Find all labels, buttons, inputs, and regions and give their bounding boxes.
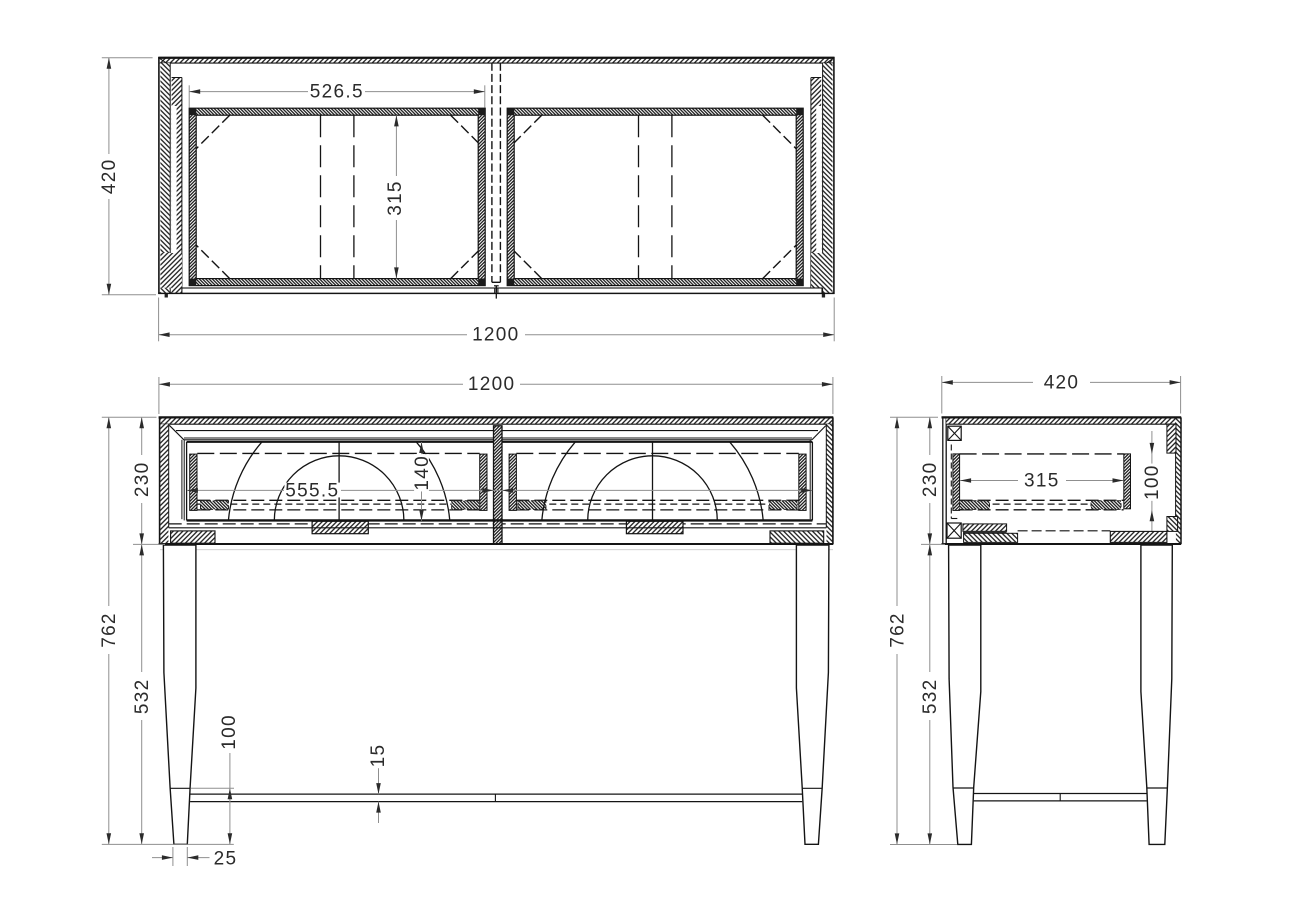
- svg-text:230: 230: [132, 461, 153, 497]
- svg-text:25: 25: [214, 848, 238, 869]
- svg-text:315: 315: [385, 180, 406, 216]
- svg-text:762: 762: [887, 612, 908, 648]
- svg-text:15: 15: [368, 744, 389, 768]
- svg-text:1200: 1200: [472, 325, 519, 346]
- svg-text:100: 100: [1142, 464, 1163, 500]
- svg-text:420: 420: [99, 158, 120, 194]
- svg-text:315: 315: [1024, 470, 1060, 491]
- svg-text:526.5: 526.5: [310, 81, 364, 102]
- svg-text:100: 100: [219, 714, 240, 750]
- svg-text:230: 230: [920, 461, 941, 497]
- svg-text:532: 532: [920, 678, 941, 714]
- svg-text:532: 532: [132, 678, 153, 714]
- svg-text:762: 762: [99, 612, 120, 648]
- svg-text:1200: 1200: [468, 374, 515, 395]
- svg-text:555.5: 555.5: [285, 480, 339, 501]
- svg-text:420: 420: [1044, 372, 1080, 393]
- svg-text:140: 140: [412, 455, 433, 491]
